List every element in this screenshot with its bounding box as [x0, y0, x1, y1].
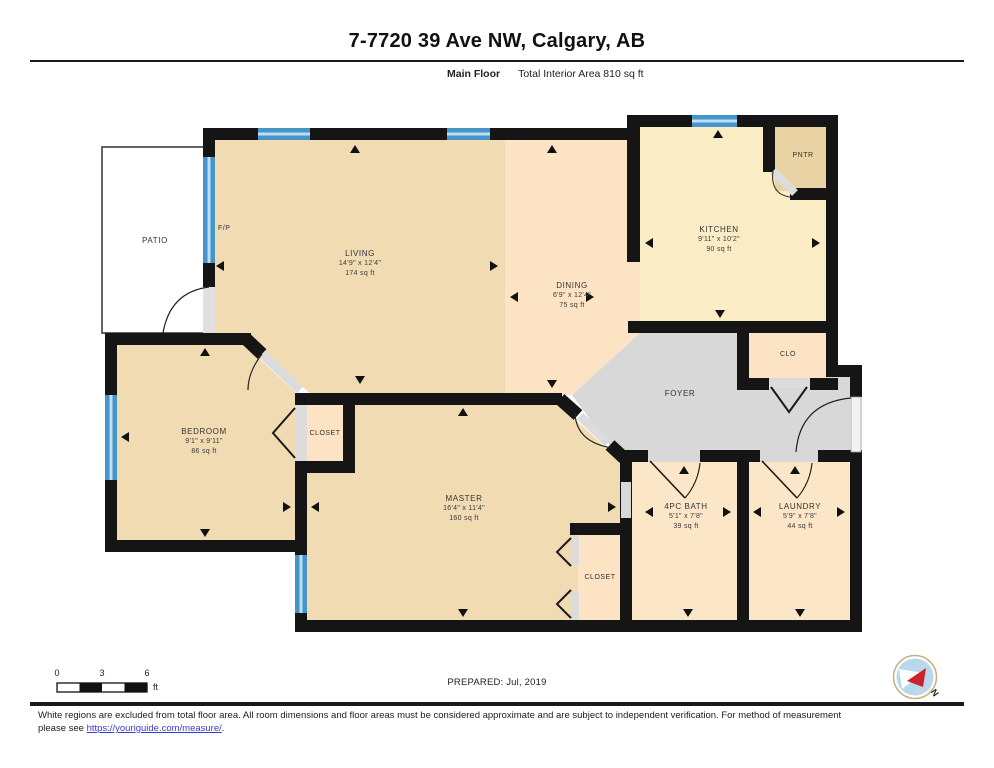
floor-plan: N	[0, 0, 994, 768]
room-label-kitchen: KITCHEN 9'11" x 10'2" 90 sq ft	[698, 225, 740, 255]
prepared-date: PREPARED: Jul, 2019	[0, 677, 994, 688]
laundry-area	[749, 462, 850, 620]
room-label-dining: DINING 6'9" x 12'4" 75 sq ft	[553, 281, 591, 311]
clo-door	[769, 380, 810, 388]
bedroom-closet-door	[295, 405, 307, 461]
room-label-master-closet: CLOSET	[584, 573, 615, 583]
room-label-laundry: LAUNDRY 5'9" x 7'8" 44 sq ft	[779, 502, 821, 532]
room-label-fireplace: F/P	[218, 224, 230, 234]
window-living-2	[447, 128, 490, 140]
master-closet-door-2	[571, 591, 579, 619]
room-label-master: MASTER 16'4" x 11'4" 160 sq ft	[443, 494, 485, 524]
room-label-foyer: FOYER	[665, 389, 696, 399]
master-closet-door-1	[571, 537, 579, 565]
room-label-bedroom-closet: CLOSET	[309, 429, 340, 439]
room-label-bedroom: BEDROOM 9'1" x 9'11" 86 sq ft	[181, 427, 227, 457]
window-master	[295, 555, 307, 613]
room-label-bath: 4PC BATH 5'1" x 7'8" 39 sq ft	[664, 502, 707, 532]
entry-door-leaf	[851, 397, 861, 452]
window-living-1	[258, 128, 310, 140]
disclaimer-line-2: please see https://youriguide.com/measur…	[38, 723, 224, 734]
window-kitchen	[692, 115, 737, 127]
window-bedroom	[105, 395, 117, 480]
footer-divider	[30, 702, 964, 706]
disclaimer-line-2-suffix: .	[222, 723, 225, 734]
disclaimer-line-2-prefix: please see	[38, 723, 87, 734]
room-label-living: LIVING 14'9" x 12'4" 174 sq ft	[339, 249, 381, 279]
bath-wall-opening	[621, 482, 631, 518]
room-label-pantry: PNTR	[792, 151, 813, 161]
window-fireplace	[203, 157, 215, 263]
patio-door-leaf	[203, 287, 215, 333]
bath-area	[632, 462, 737, 620]
disclaimer-line-1: White regions are excluded from total fl…	[38, 710, 841, 721]
room-label-clo: CLO	[780, 350, 796, 360]
measure-link[interactable]: https://youriguide.com/measure/	[87, 723, 222, 734]
room-label-patio: PATIO	[142, 236, 168, 246]
